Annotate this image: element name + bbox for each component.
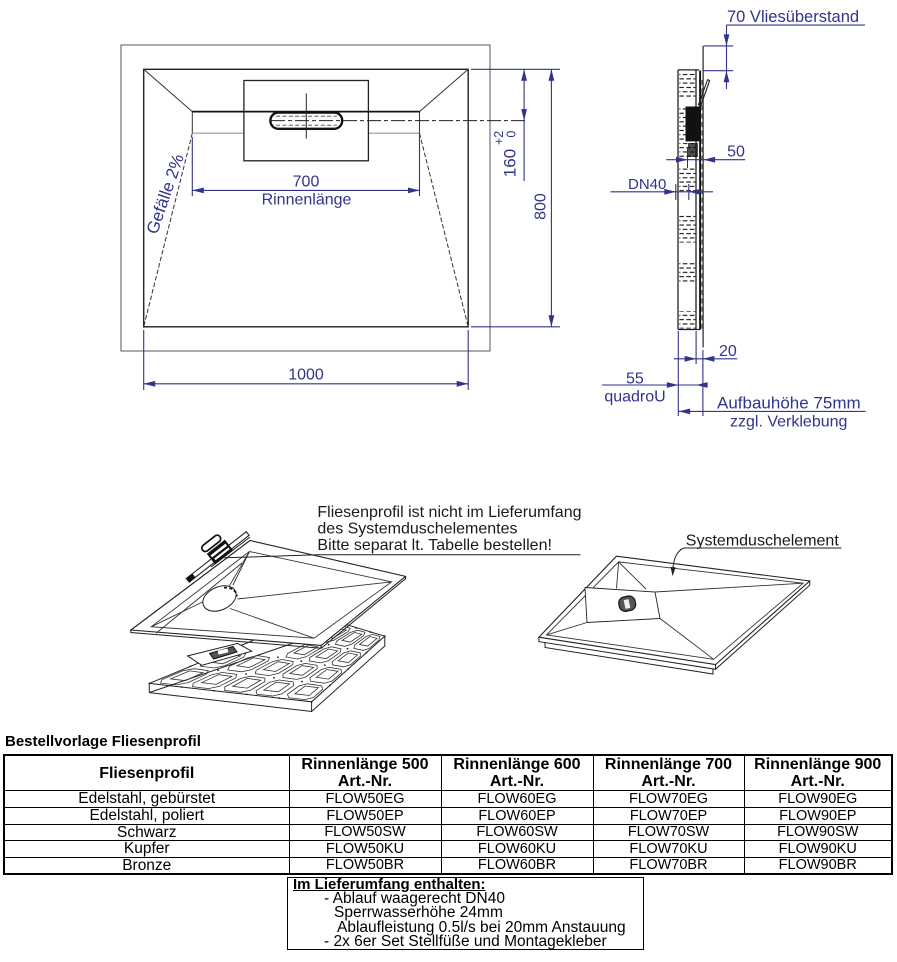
svg-text:160: 160 — [501, 149, 520, 177]
svg-text:Bitte separat lt. Tabelle best: Bitte separat lt. Tabelle bestellen! — [317, 537, 552, 554]
svg-text:700: 700 — [293, 174, 320, 191]
svg-text:des Systemduschelementes: des Systemduschelementes — [317, 521, 517, 538]
svg-text:zzgl. Verklebung: zzgl. Verklebung — [730, 414, 847, 431]
svg-text:1000: 1000 — [288, 367, 324, 384]
svg-text:0: 0 — [505, 131, 519, 138]
svg-text:800: 800 — [533, 193, 550, 220]
svg-text:Gefälle 2%: Gefälle 2% — [143, 152, 188, 237]
svg-text:20: 20 — [719, 343, 737, 360]
svg-text:55: 55 — [626, 371, 644, 388]
svg-text:Aufbauhöhe 75mm: Aufbauhöhe 75mm — [717, 394, 861, 413]
svg-text:quadroU: quadroU — [604, 389, 665, 406]
svg-text:DN40: DN40 — [628, 176, 666, 193]
svg-text:50: 50 — [727, 144, 745, 161]
svg-text:Rinnenlänge: Rinnenlänge — [262, 192, 352, 209]
svg-text:70 Vliesüberstand: 70 Vliesüberstand — [727, 8, 859, 26]
svg-text:Fliesenprofil ist nicht im Lie: Fliesenprofil ist nicht im Lieferumfang — [317, 504, 581, 521]
svg-text:Systemduschelement: Systemduschelement — [686, 533, 840, 550]
